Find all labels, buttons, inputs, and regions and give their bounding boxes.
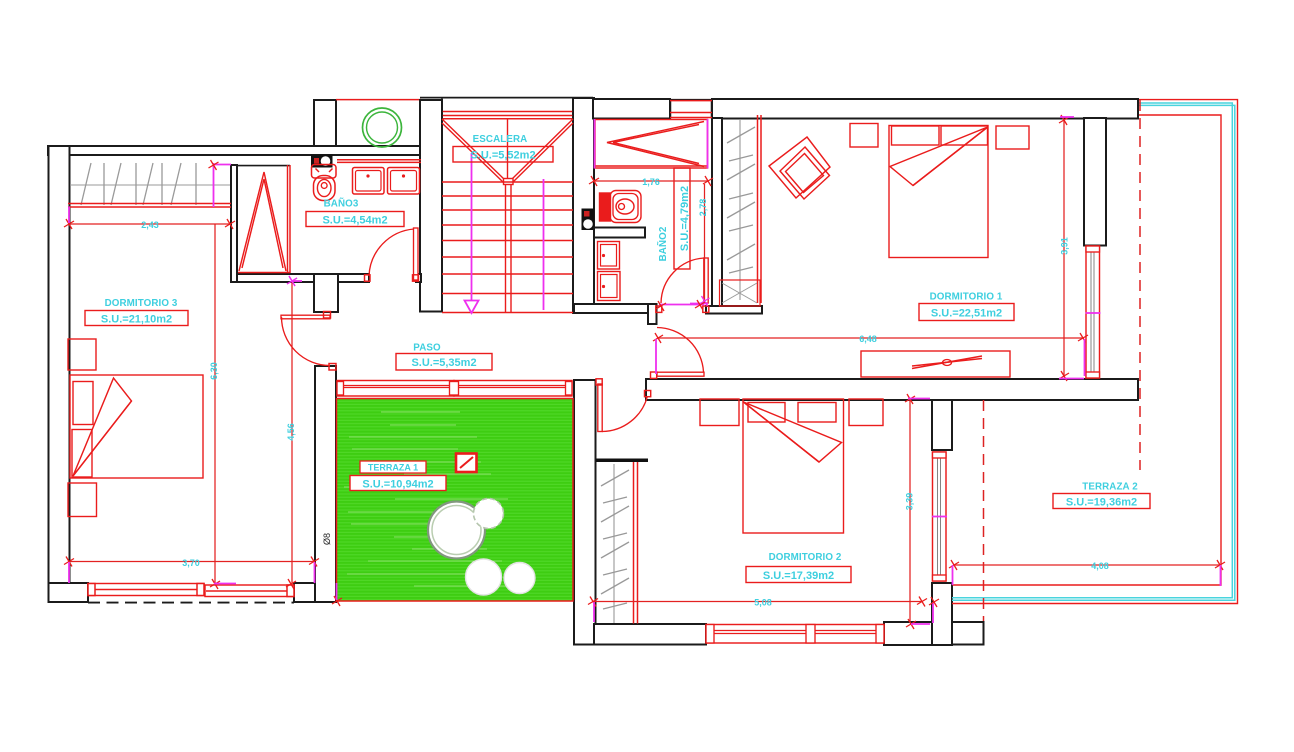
svg-text:3,39: 3,39 xyxy=(905,493,915,511)
svg-text:4,56: 4,56 xyxy=(286,423,296,441)
svg-text:BAÑO3: BAÑO3 xyxy=(324,199,359,210)
svg-text:ESCALERA: ESCALERA xyxy=(473,134,528,145)
svg-text:TERRAZA 1: TERRAZA 1 xyxy=(368,463,418,473)
svg-text:S.U.=19,36m2: S.U.=19,36m2 xyxy=(1066,497,1137,509)
svg-text:2,43: 2,43 xyxy=(141,220,159,230)
svg-text:Ø8: Ø8 xyxy=(322,533,332,545)
svg-text:DORMITORIO 3: DORMITORIO 3 xyxy=(105,298,178,309)
svg-text:4,08: 4,08 xyxy=(1091,561,1109,571)
svg-text:DORMITORIO 2: DORMITORIO 2 xyxy=(769,552,842,563)
svg-text:3,91: 3,91 xyxy=(1060,237,1070,255)
svg-text:S.U.=5,52m2: S.U.=5,52m2 xyxy=(470,150,535,162)
svg-text:S.U.=5,35m2: S.U.=5,35m2 xyxy=(411,357,476,369)
svg-text:PASO: PASO xyxy=(413,343,441,354)
svg-text:S.U.=22,51m2: S.U.=22,51m2 xyxy=(931,308,1002,320)
svg-text:2,78: 2,78 xyxy=(698,199,708,217)
svg-text:6,30: 6,30 xyxy=(209,362,219,380)
svg-text:6,48: 6,48 xyxy=(859,334,877,344)
svg-text:S.U.=4,54m2: S.U.=4,54m2 xyxy=(322,215,387,227)
svg-text:S.U.=17,39m2: S.U.=17,39m2 xyxy=(763,570,834,582)
svg-text:5,08: 5,08 xyxy=(754,598,772,608)
svg-text:DORMITORIO 1: DORMITORIO 1 xyxy=(930,292,1003,303)
svg-text:S.U.=21,10m2: S.U.=21,10m2 xyxy=(101,314,172,326)
svg-text:BAÑO2: BAÑO2 xyxy=(658,226,669,261)
svg-text:TERRAZA 2: TERRAZA 2 xyxy=(1082,482,1138,493)
svg-text:S.U.=10,94m2: S.U.=10,94m2 xyxy=(362,479,433,491)
svg-text:S.U.=4,79m2: S.U.=4,79m2 xyxy=(679,186,691,251)
svg-text:1,76: 1,76 xyxy=(642,177,660,187)
svg-text:3,70: 3,70 xyxy=(182,558,200,568)
